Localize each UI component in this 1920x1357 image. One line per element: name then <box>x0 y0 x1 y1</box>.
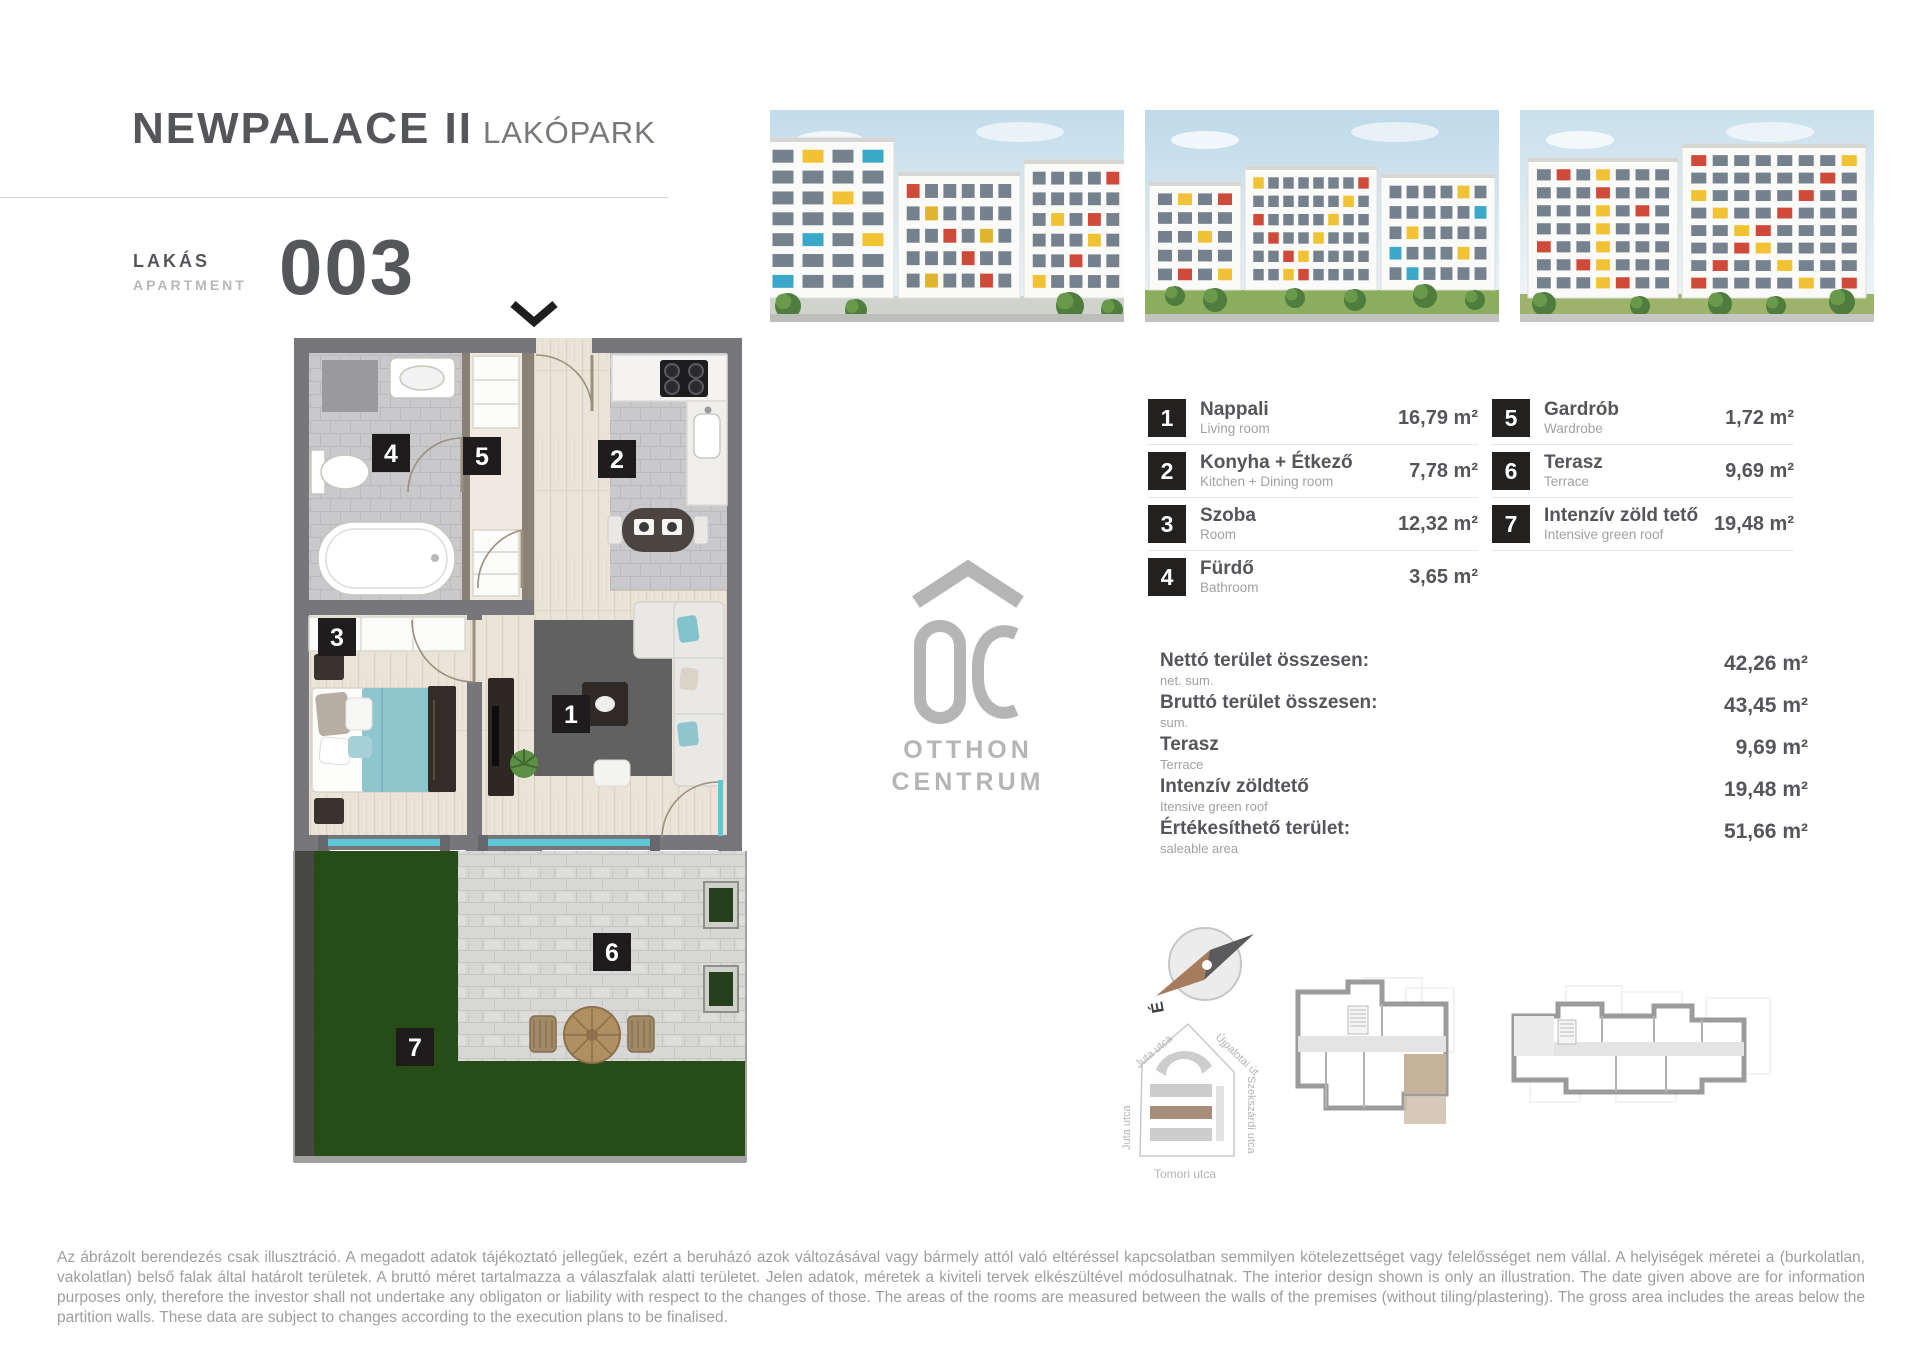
dining-table <box>622 508 694 552</box>
planter <box>704 966 738 1012</box>
room-number-badge: 2 <box>1148 452 1186 490</box>
nightstand <box>314 798 344 824</box>
street-label: Tomori utca <box>1154 1167 1216 1181</box>
room-number-badge: 3 <box>1148 505 1186 543</box>
street-label: Szekszárdi utca <box>1245 1076 1257 1155</box>
site-building-highlighted <box>1150 1106 1212 1119</box>
legend-row-konyha: 2 Konyha + Étkező Kitchen + Dining room … <box>1148 444 1478 497</box>
oc-logo-mark <box>916 568 1020 718</box>
floor-plan: 1 2 3 4 5 6 7 <box>230 290 790 1180</box>
street-label: Juta utca <box>1121 1104 1133 1150</box>
svg-text:1: 1 <box>564 701 578 729</box>
otthon-centrum-logo: OC OTTHON CENTRUM <box>878 530 1058 810</box>
building-render-photo-2 <box>1145 110 1499 322</box>
room-number-badge: 6 <box>1492 452 1530 490</box>
legend-row-zoldteto: 7 Intenzív zöld tető Intensive green roo… <box>1492 497 1794 551</box>
site-building <box>1150 1084 1212 1097</box>
svg-text:2: 2 <box>610 446 624 474</box>
svg-text:3: 3 <box>330 624 344 652</box>
key-plan-overview <box>1506 984 1778 1106</box>
legend-row-szoba: 3 Szoba Room 12,32 m² <box>1148 497 1478 550</box>
nightstand <box>314 654 344 680</box>
summary-brutto: Bruttó terület összesen: sum. 43,45 m² <box>1160 692 1808 734</box>
svg-text:6: 6 <box>605 939 619 967</box>
room-number-badge: 4 <box>1148 558 1186 596</box>
entrance-arrow-icon <box>513 304 555 322</box>
svg-text:7: 7 <box>408 1034 422 1062</box>
key-plan-highlighted <box>1286 976 1458 1126</box>
site-map: Juta utca Újpalotai út Szekszárdi utca J… <box>1112 1008 1272 1193</box>
summary-terasz: Terasz Terrace 9,69 m² <box>1160 734 1808 776</box>
garden <box>294 851 746 1163</box>
highlighted-unit <box>1404 1054 1446 1094</box>
project-name: NEWPALACE II <box>132 104 473 153</box>
apartment-datasheet-page: NEWPALACE IILAKÓPARK LAKÁS APARTMENT 003 <box>0 0 1920 1357</box>
building-render-photo-1 <box>770 110 1124 322</box>
room-legend-col2: 5 Gardrób Wardrobe 1,72 m² 6 Terasz Terr… <box>1492 392 1794 551</box>
summary-zoldteto: Intenzív zöldtető Itensive green roof 19… <box>1160 776 1808 818</box>
svg-text:5: 5 <box>475 443 489 471</box>
page-title: NEWPALACE IILAKÓPARK <box>132 104 656 154</box>
tv-cabinet <box>488 678 514 796</box>
header-divider <box>0 197 668 198</box>
bedroom-dresser <box>428 686 456 792</box>
legend-row-terasz: 6 Terasz Terrace 9,69 m² <box>1492 444 1794 497</box>
room-number-badge: 7 <box>1492 505 1530 543</box>
legend-row-nappali: 1 Nappali Living room 16,79 m² <box>1148 392 1478 444</box>
project-subtitle: LAKÓPARK <box>483 115 656 150</box>
area-summary: Nettó terület összesen: net. sum. 42,26 … <box>1160 650 1808 860</box>
highlighted-terrace <box>1404 1096 1446 1124</box>
planter <box>704 882 738 928</box>
room-legend-col1: 1 Nappali Living room 16,79 m² 2 Konyha … <box>1148 392 1478 603</box>
room-number-badge: 1 <box>1148 399 1186 437</box>
logo-line1: OTTHON <box>903 736 1033 764</box>
legend-row-gardrob: 5 Gardrób Wardrobe 1,72 m² <box>1492 392 1794 444</box>
logo-line2: CENTRUM <box>892 768 1045 796</box>
pouf <box>594 760 630 786</box>
kitchen-sink <box>694 414 720 458</box>
disclaimer-text: Az ábrázolt berendezés csak illusztráció… <box>57 1248 1865 1328</box>
svg-text:4: 4 <box>384 440 398 468</box>
summary-ertekesitheto: Értékesíthető terület: saleable area 51,… <box>1160 818 1808 860</box>
apartment-label: LAKÁS APARTMENT <box>133 251 247 293</box>
building-render-photo-3 <box>1520 110 1874 322</box>
summary-netto: Nettó terület összesen: net. sum. 42,26 … <box>1160 650 1808 692</box>
site-building <box>1150 1128 1212 1141</box>
legend-row-furdo: 4 Fürdő Bathroom 3,65 m² <box>1148 550 1478 603</box>
room-number-badge: 5 <box>1492 399 1530 437</box>
